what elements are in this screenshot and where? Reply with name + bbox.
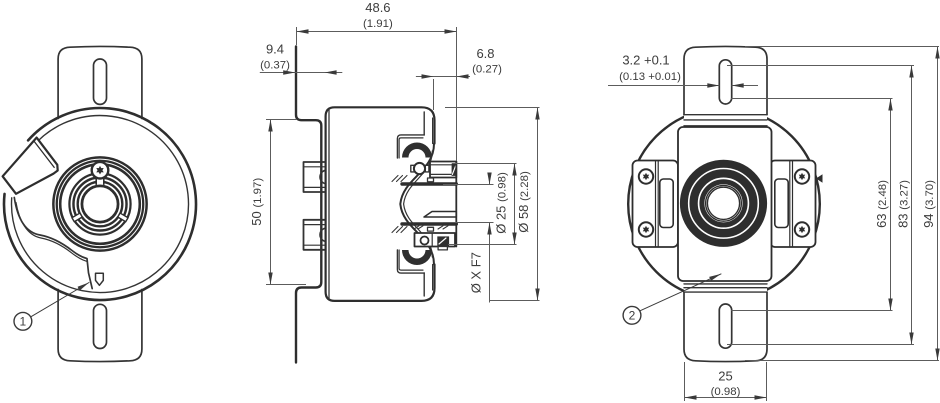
svg-text:25: 25 — [718, 368, 732, 383]
svg-text:3.2 +0.1: 3.2 +0.1 — [622, 53, 669, 68]
svg-text:9.4: 9.4 — [266, 42, 284, 57]
svg-text:(0.37): (0.37) — [260, 60, 290, 72]
svg-text:2: 2 — [629, 309, 636, 323]
svg-text:(0.98): (0.98) — [711, 386, 741, 398]
svg-text:(0.27): (0.27) — [472, 63, 502, 75]
svg-text:48.6: 48.6 — [365, 0, 390, 15]
svg-text:(1.91): (1.91) — [363, 18, 393, 30]
svg-text:94 (3.70): 94 (3.70) — [921, 180, 936, 228]
svg-text:Ø 58 (2.28): Ø 58 (2.28) — [516, 171, 531, 233]
svg-text:Ø X F7: Ø X F7 — [469, 252, 484, 293]
svg-text:63 (2.48): 63 (2.48) — [874, 180, 889, 228]
svg-text:83 (3.27): 83 (3.27) — [896, 180, 911, 228]
svg-text:Ø 25 (0.98): Ø 25 (0.98) — [494, 172, 509, 234]
svg-text:50 (1.97): 50 (1.97) — [249, 178, 264, 226]
svg-text:(0.13 +0.01): (0.13 +0.01) — [619, 71, 681, 83]
svg-text:1: 1 — [20, 315, 27, 329]
svg-text:6.8: 6.8 — [476, 46, 494, 61]
